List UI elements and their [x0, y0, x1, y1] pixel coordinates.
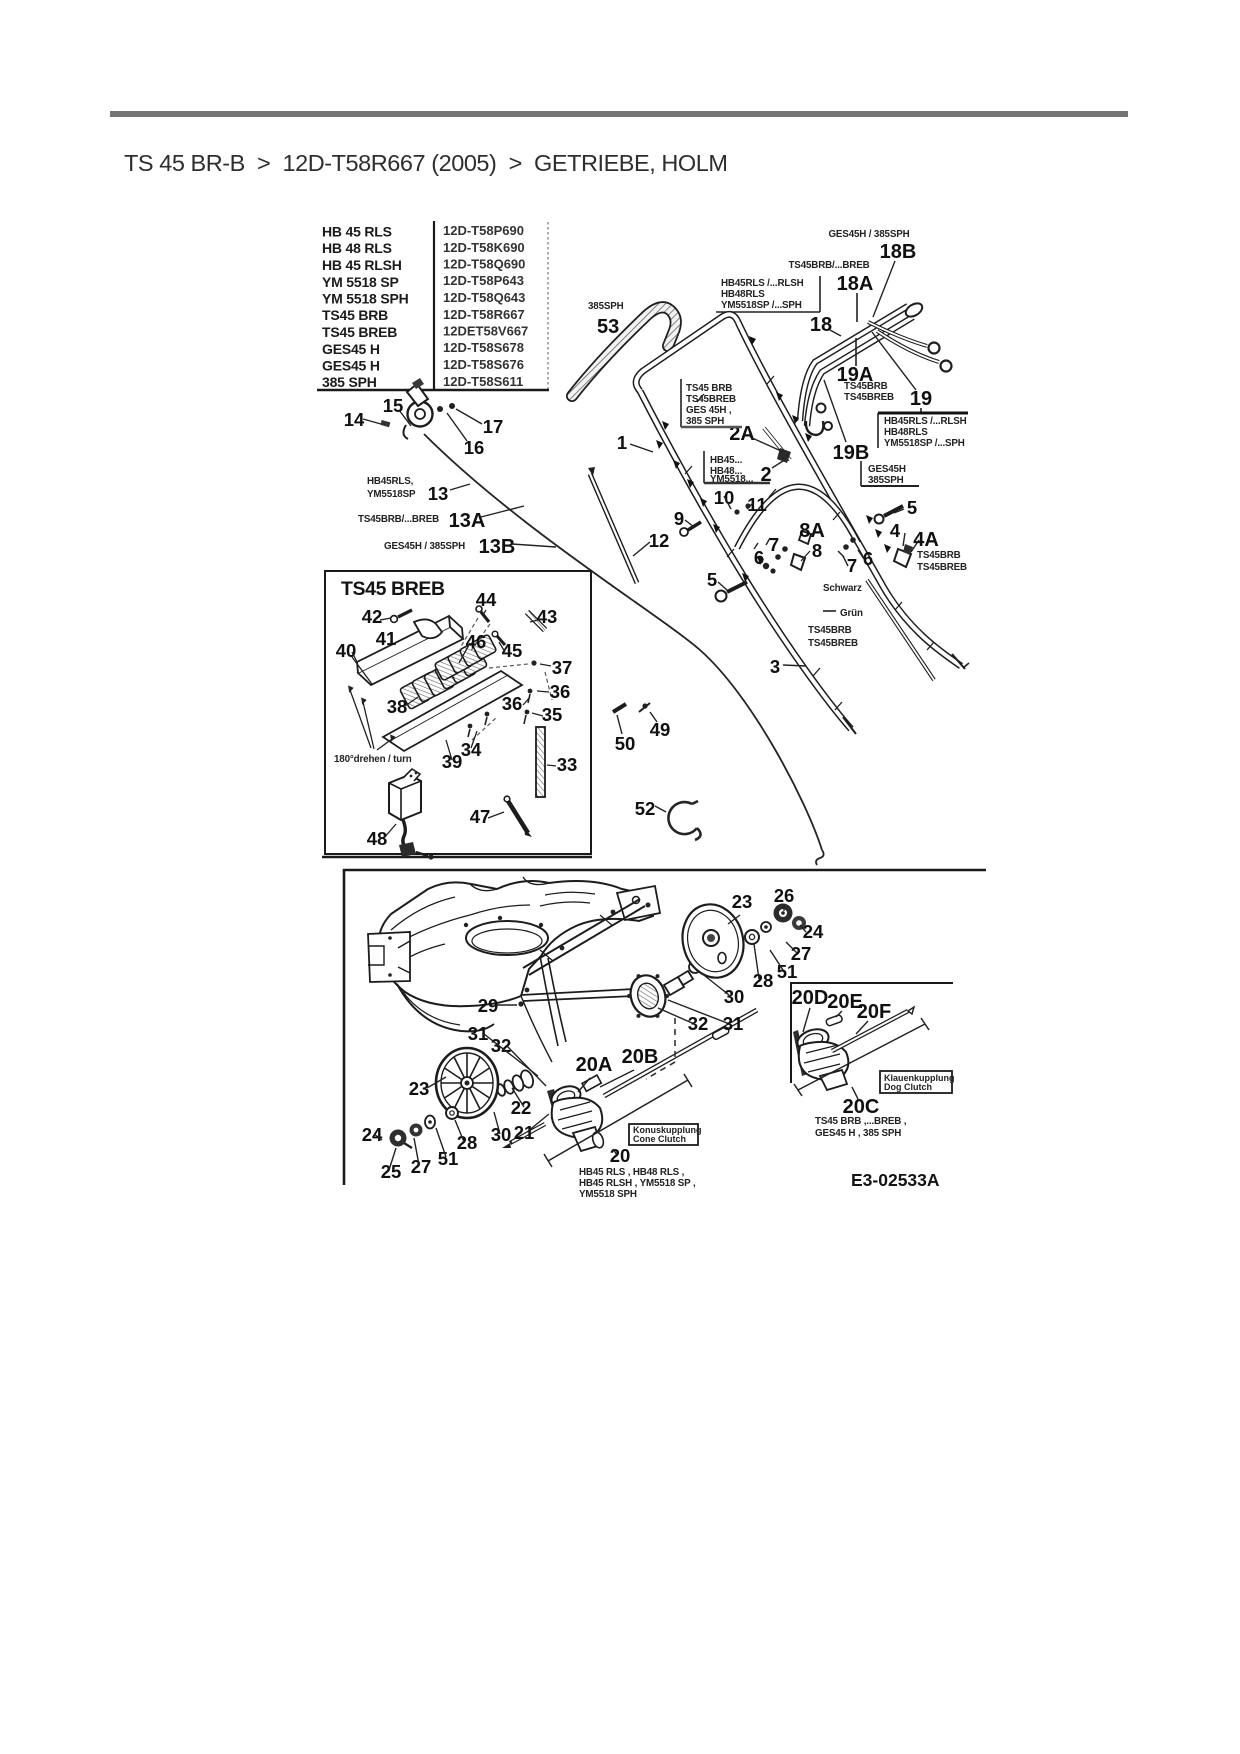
svg-text:18: 18 — [810, 314, 832, 336]
svg-text:HB 45 RLSH: HB 45 RLSH — [322, 257, 402, 273]
svg-text:9: 9 — [674, 508, 684, 529]
svg-text:29: 29 — [478, 995, 499, 1016]
svg-text:40: 40 — [336, 640, 357, 661]
svg-text:12D-T58R667: 12D-T58R667 — [443, 307, 525, 322]
svg-text:TS45 BREB: TS45 BREB — [322, 324, 397, 340]
svg-text:TS45BRB: TS45BRB — [917, 550, 961, 561]
svg-text:TS45BRB: TS45BRB — [844, 381, 888, 392]
svg-text:19B: 19B — [833, 442, 870, 464]
svg-text:GES 45H ,: GES 45H , — [686, 405, 732, 416]
svg-text:12D-T58P643: 12D-T58P643 — [443, 273, 524, 288]
svg-text:385SPH: 385SPH — [868, 475, 904, 486]
svg-text:23: 23 — [732, 891, 753, 912]
svg-text:27: 27 — [411, 1156, 432, 1177]
svg-text:385SPH: 385SPH — [588, 301, 624, 312]
svg-text:HB 48 RLS: HB 48 RLS — [322, 240, 392, 256]
svg-text:12D-T58Q643: 12D-T58Q643 — [443, 290, 525, 305]
svg-text:31: 31 — [723, 1013, 744, 1034]
svg-text:HB45RLS /...RLSH: HB45RLS /...RLSH — [721, 278, 804, 289]
svg-text:TS45BRB/...BREB: TS45BRB/...BREB — [788, 260, 869, 271]
svg-text:20C: 20C — [843, 1096, 880, 1118]
svg-text:HB 45 RLS: HB 45 RLS — [322, 224, 392, 240]
svg-text:YM 5518 SPH: YM 5518 SPH — [322, 291, 409, 307]
svg-text:22: 22 — [511, 1097, 532, 1118]
svg-text:7: 7 — [769, 534, 779, 555]
svg-text:13: 13 — [428, 483, 449, 504]
svg-text:44: 44 — [476, 589, 497, 610]
svg-text:33: 33 — [557, 754, 578, 775]
svg-text:GES45 H , 385 SPH: GES45 H , 385 SPH — [815, 1128, 901, 1139]
svg-text:12: 12 — [649, 530, 670, 551]
svg-text:13A: 13A — [449, 510, 486, 532]
svg-text:20F: 20F — [857, 1001, 891, 1023]
svg-text:13B: 13B — [479, 536, 516, 558]
svg-text:YM 5518 SP: YM 5518 SP — [322, 274, 399, 290]
svg-text:36: 36 — [550, 681, 571, 702]
svg-text:Dog Clutch: Dog Clutch — [884, 1082, 932, 1092]
svg-text:HB45...: HB45... — [710, 455, 743, 466]
svg-text:TS45 BRB: TS45 BRB — [322, 307, 388, 323]
svg-text:12D-T58S678: 12D-T58S678 — [443, 340, 524, 355]
svg-text:28: 28 — [753, 970, 774, 991]
svg-text:TS45BREB: TS45BREB — [686, 394, 736, 405]
svg-text:TS45BRB/...BREB: TS45BRB/...BREB — [358, 514, 439, 525]
svg-text:28: 28 — [457, 1132, 478, 1153]
svg-text:20B: 20B — [622, 1046, 659, 1068]
svg-text:HB48RLS: HB48RLS — [884, 427, 928, 438]
svg-text:48: 48 — [367, 828, 388, 849]
svg-text:35: 35 — [542, 704, 563, 725]
svg-text:49: 49 — [650, 719, 671, 740]
svg-text:23: 23 — [409, 1078, 430, 1099]
svg-text:180°drehen / turn: 180°drehen / turn — [334, 754, 412, 765]
svg-text:HB45 RLS , HB48 RLS ,: HB45 RLS , HB48 RLS , — [579, 1167, 685, 1178]
svg-text:1: 1 — [617, 432, 627, 453]
svg-text:GES45 H: GES45 H — [322, 358, 380, 374]
svg-text:YM5518...: YM5518... — [710, 474, 754, 485]
svg-text:TS45 BRB ,...BREB ,: TS45 BRB ,...BREB , — [815, 1116, 907, 1127]
svg-text:52: 52 — [635, 798, 656, 819]
svg-text:36: 36 — [502, 693, 523, 714]
svg-text:11: 11 — [747, 494, 767, 515]
svg-text:12D-T58S676: 12D-T58S676 — [443, 357, 524, 372]
svg-text:YM5518 SPH: YM5518 SPH — [579, 1189, 637, 1200]
svg-text:Grün: Grün — [840, 608, 863, 619]
svg-text:21: 21 — [514, 1122, 535, 1143]
svg-text:YM5518SP /...SPH: YM5518SP /...SPH — [721, 300, 802, 311]
svg-text:HB45 RLSH , YM5518 SP ,: HB45 RLSH , YM5518 SP , — [579, 1178, 696, 1189]
svg-text:50: 50 — [615, 733, 636, 754]
svg-text:5: 5 — [707, 569, 717, 590]
svg-text:47: 47 — [470, 806, 491, 827]
svg-text:30: 30 — [491, 1124, 512, 1145]
svg-text:17: 17 — [483, 416, 504, 437]
svg-text:10: 10 — [714, 487, 735, 508]
svg-text:GES45 H: GES45 H — [322, 341, 380, 357]
svg-text:TS45 BRB: TS45 BRB — [686, 383, 732, 394]
svg-text:GES45H / 385SPH: GES45H / 385SPH — [828, 229, 909, 240]
svg-text:5: 5 — [907, 497, 917, 518]
svg-text:37: 37 — [552, 657, 573, 678]
svg-text:HB45RLS /...RLSH: HB45RLS /...RLSH — [884, 416, 967, 427]
svg-text:15: 15 — [383, 395, 404, 416]
svg-text:41: 41 — [376, 628, 397, 649]
svg-text:TS45 BREB: TS45 BREB — [341, 578, 445, 600]
svg-text:38: 38 — [387, 696, 408, 717]
svg-text:12DET58V667: 12DET58V667 — [443, 324, 528, 339]
svg-text:51: 51 — [438, 1148, 459, 1169]
svg-text:31: 31 — [468, 1023, 489, 1044]
svg-text:12D-T58K690: 12D-T58K690 — [443, 240, 525, 255]
svg-text:TS45BRB: TS45BRB — [808, 625, 852, 636]
svg-text:12D-T58Q690: 12D-T58Q690 — [443, 257, 525, 272]
svg-text:385 SPH: 385 SPH — [686, 416, 724, 427]
svg-text:8A: 8A — [799, 520, 825, 542]
svg-text:39: 39 — [442, 751, 463, 772]
svg-text:6: 6 — [754, 547, 764, 568]
svg-text:20A: 20A — [576, 1054, 613, 1076]
svg-text:53: 53 — [597, 316, 619, 338]
svg-text:4: 4 — [890, 520, 901, 541]
svg-text:26: 26 — [774, 885, 795, 906]
svg-text:30: 30 — [724, 986, 745, 1007]
svg-text:TS45BREB: TS45BREB — [844, 392, 894, 403]
svg-text:46: 46 — [466, 631, 487, 652]
svg-text:Schwarz: Schwarz — [823, 583, 862, 594]
svg-text:YM5518SP: YM5518SP — [367, 489, 416, 500]
svg-text:12D-T58S611: 12D-T58S611 — [443, 374, 523, 389]
svg-text:42: 42 — [362, 606, 383, 627]
svg-text:8: 8 — [812, 540, 822, 561]
svg-text:E3-02533A: E3-02533A — [851, 1170, 940, 1190]
svg-text:24: 24 — [362, 1124, 383, 1145]
svg-text:HB45RLS,: HB45RLS, — [367, 476, 414, 487]
svg-text:18A: 18A — [837, 273, 874, 295]
svg-text:4A: 4A — [913, 529, 939, 551]
svg-text:385 SPH: 385 SPH — [322, 374, 377, 390]
svg-text:32: 32 — [688, 1013, 709, 1034]
svg-text:TS45BREB: TS45BREB — [808, 638, 858, 649]
svg-text:3: 3 — [770, 656, 780, 677]
svg-text:20D: 20D — [792, 987, 829, 1009]
svg-text:GES45H / 385SPH: GES45H / 385SPH — [384, 541, 465, 552]
svg-text:HB48RLS: HB48RLS — [721, 289, 765, 300]
svg-text:20: 20 — [610, 1145, 631, 1166]
svg-text:TS45BREB: TS45BREB — [917, 562, 967, 573]
svg-text:43: 43 — [537, 606, 558, 627]
svg-text:18B: 18B — [880, 241, 917, 263]
svg-text:19: 19 — [910, 388, 932, 410]
svg-text:12D-T58P690: 12D-T58P690 — [443, 223, 524, 238]
svg-text:Cone Clutch: Cone Clutch — [633, 1134, 686, 1144]
svg-text:14: 14 — [344, 409, 365, 430]
svg-text:YM5518SP /...SPH: YM5518SP /...SPH — [884, 438, 965, 449]
svg-text:34: 34 — [461, 739, 482, 760]
svg-text:GES45H: GES45H — [868, 464, 906, 475]
